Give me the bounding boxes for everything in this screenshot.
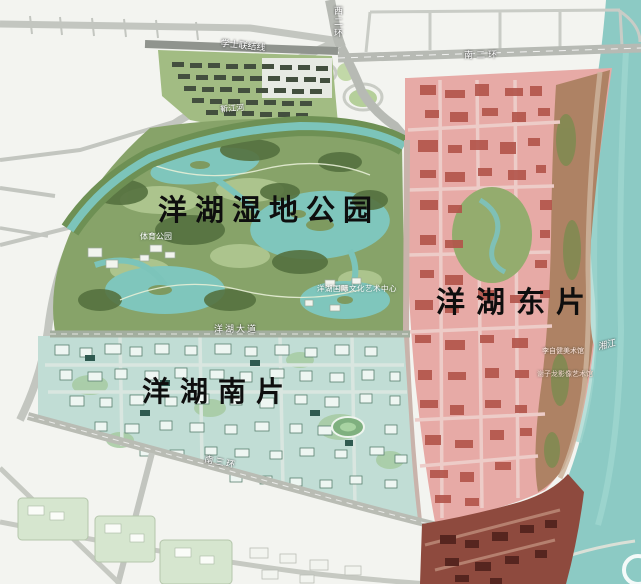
label-south-section: 洋湖南片: [142, 378, 294, 406]
label-wetland-park: 洋湖湿地公园: [158, 196, 380, 225]
label-xie-zilong-museum: 谢子龙影像艺术馆: [537, 371, 593, 378]
label-road-south-2nd-ring: 南二环: [464, 51, 500, 61]
label-sports-park: 体育公园: [140, 233, 172, 241]
label-arts-center: 洋湖国际文化艺术中心: [317, 285, 397, 293]
planning-map: 洋湖湿地公园 洋湖东片 洋湖南片 学士联结线 西二环 南二环 洋湖大道 南三环 …: [0, 0, 641, 584]
label-road-yanghu-avenue: 洋湖大道: [214, 326, 258, 335]
label-road-west-2nd-ring: 西二环: [332, 6, 341, 39]
label-east-section: 洋湖东片: [436, 288, 596, 317]
label-li-zijian-museum: 李自健美术馆: [542, 348, 584, 355]
east-inner-park: [452, 187, 532, 283]
